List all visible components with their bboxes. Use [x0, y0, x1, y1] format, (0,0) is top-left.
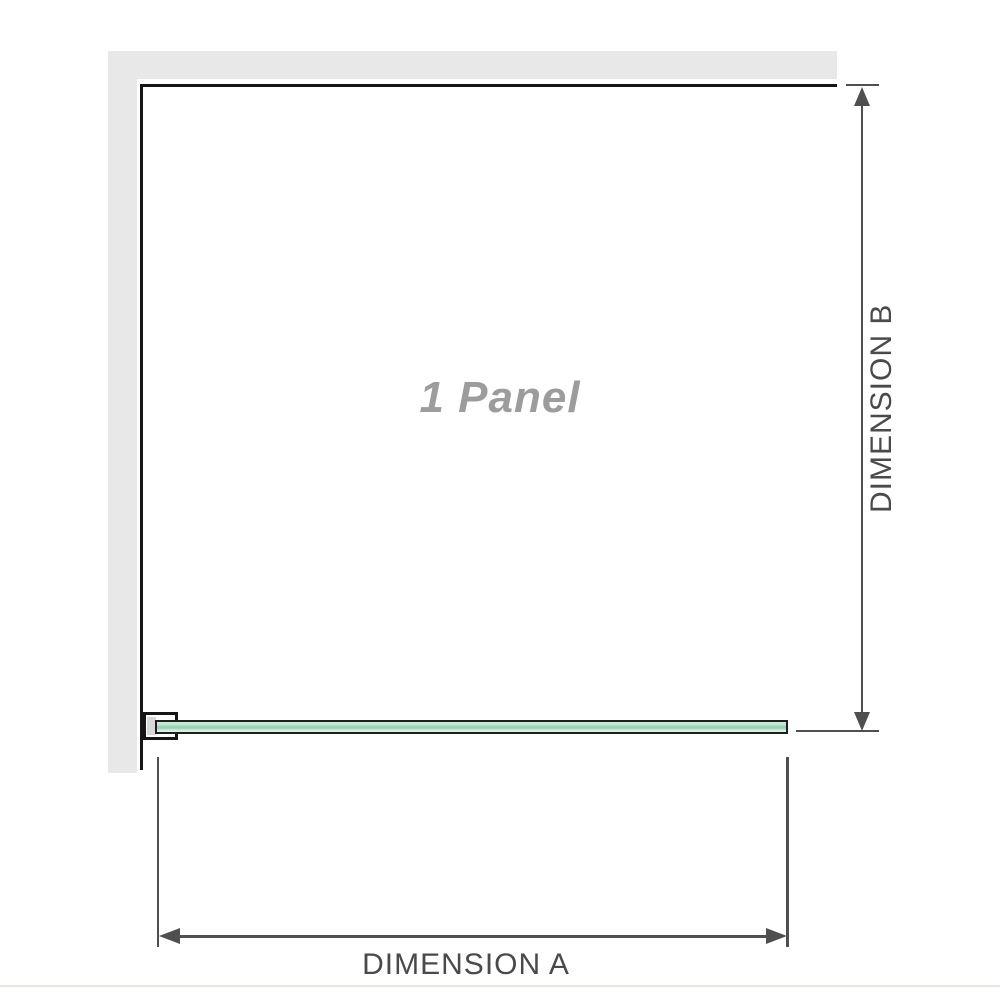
dimension-b-label: DIMENSION B [866, 317, 898, 513]
dimension-a-label: DIMENSION A [338, 948, 594, 982]
panel-count-label: 1 Panel [330, 372, 670, 424]
arrow-left-icon [159, 928, 180, 944]
dimension-a-left-extension-line [157, 757, 160, 947]
wall-left-band [108, 51, 137, 773]
arrow-up-icon [854, 87, 870, 106]
panel-top-edge [140, 84, 837, 87]
arrow-right-icon [766, 928, 787, 944]
panel-left-edge [140, 84, 143, 770]
dimension-a-line [176, 935, 770, 938]
wall-top-band [108, 51, 837, 79]
panel-diagram: 1 Panel DIMENSION B DIMENSION A [0, 0, 1000, 1000]
arrow-down-icon [854, 712, 870, 731]
page-baseline [0, 985, 1000, 987]
dimension-a-right-extension-line [786, 757, 789, 947]
glass-panel [155, 720, 788, 734]
dimension-b-line [861, 100, 864, 716]
